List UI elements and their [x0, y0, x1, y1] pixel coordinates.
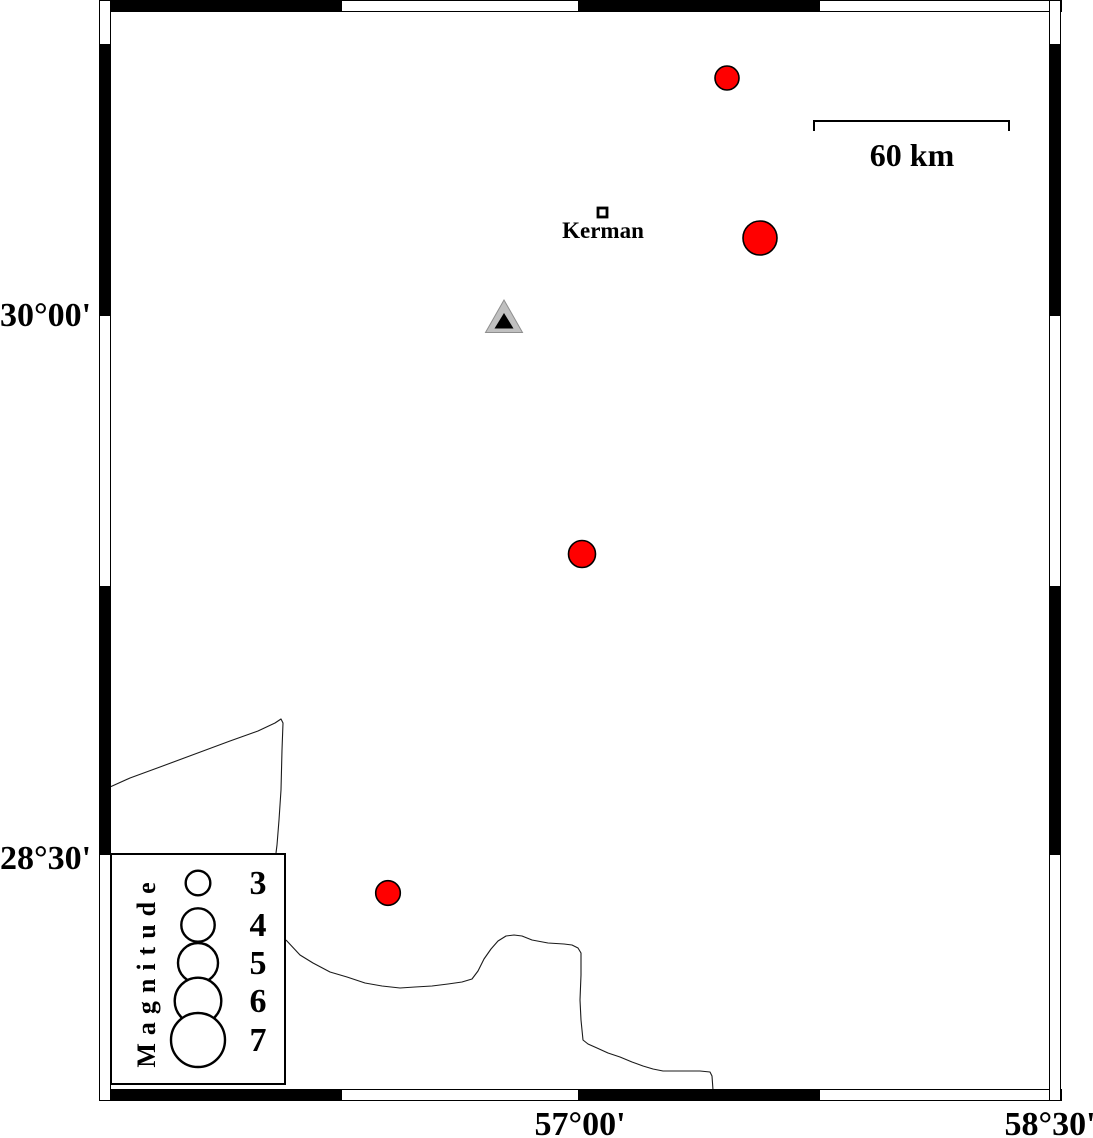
map-frame-top [99, 0, 1062, 12]
legend-magnitude-number: 4 [220, 909, 296, 943]
coastline-path [110, 719, 283, 853]
legend-size-circles [171, 871, 225, 1067]
frame-segment [104, 1090, 342, 1100]
station-triangle-icon [486, 300, 523, 333]
kerman-square-marker [598, 208, 607, 217]
lon-label-57-00: 57°00' [480, 1107, 680, 1138]
map-frame-bottom [99, 1089, 1062, 1101]
frame-segment [100, 44, 110, 316]
frame-segment [1050, 586, 1060, 855]
legend-magnitude-number: 3 [220, 867, 296, 901]
frame-segment [1050, 44, 1060, 316]
scale-bar [814, 121, 1009, 131]
earthquake-marker [569, 541, 596, 568]
legend-circle [171, 1013, 225, 1067]
city-label-kerman: Kerman [503, 219, 703, 243]
magnitude-legend: Magnitude 34567 [110, 853, 286, 1085]
earthquake-markers [376, 66, 777, 905]
frame-segment [578, 1090, 820, 1100]
coastline-path [286, 935, 713, 1090]
lat-label-28-30: 28°30' [0, 841, 88, 877]
seismicity-map-figure: 30°00' 28°30' 57°00' 58°30' 60 km Kerman… [0, 0, 1093, 1138]
legend-circle [186, 871, 211, 896]
legend-magnitude-number: 5 [220, 947, 296, 981]
earthquake-marker [376, 881, 401, 906]
city-square-icon [598, 208, 607, 217]
frame-segment [100, 586, 110, 855]
earthquake-marker [743, 221, 777, 255]
frame-segment [578, 1, 820, 11]
scale-bar-label: 60 km [812, 139, 1012, 173]
lon-label-58-30: 58°30' [950, 1107, 1093, 1138]
frame-segment [110, 1, 342, 11]
lat-label-30-00: 30°00' [0, 298, 88, 334]
legend-magnitude-number: 6 [220, 985, 296, 1019]
map-frame-right [1049, 0, 1061, 1101]
earthquake-marker [715, 66, 739, 90]
legend-title: Magnitude [134, 874, 160, 1067]
legend-circle [181, 908, 214, 941]
legend-magnitude-number: 7 [220, 1024, 296, 1058]
scale-bar-bracket [814, 121, 1009, 131]
